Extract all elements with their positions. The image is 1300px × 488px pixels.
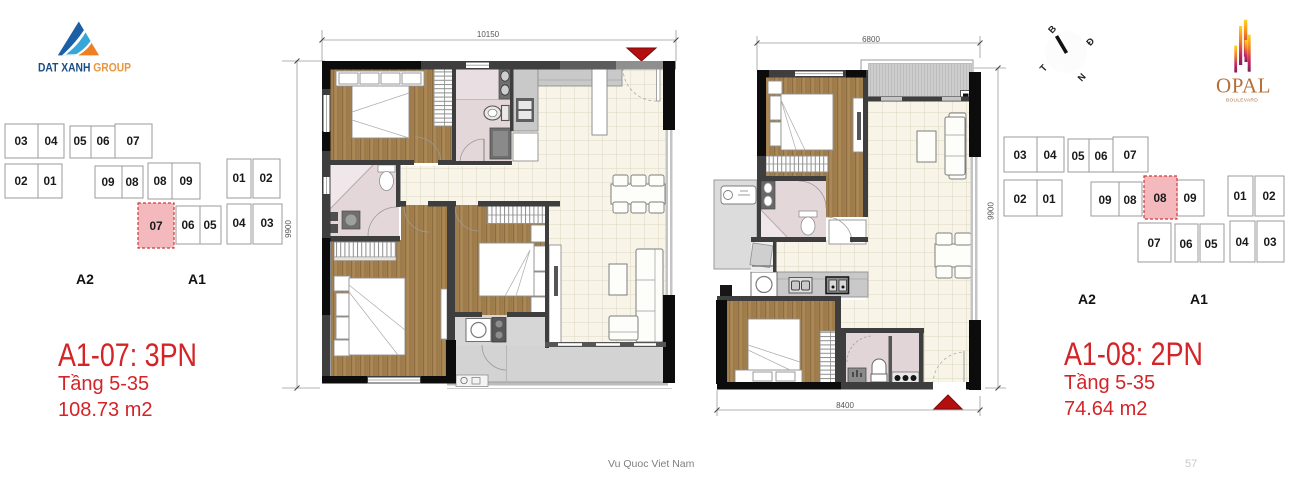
svg-text:09: 09 xyxy=(1183,191,1197,205)
svg-text:05: 05 xyxy=(203,218,217,232)
svg-text:9900: 9900 xyxy=(987,202,996,220)
svg-text:08: 08 xyxy=(153,174,167,188)
svg-text:DAT XANH GROUP: DAT XANH GROUP xyxy=(38,63,131,75)
svg-text:02: 02 xyxy=(259,171,273,185)
svg-text:BOULEVARD: BOULEVARD xyxy=(1226,98,1258,104)
svg-text:01: 01 xyxy=(232,171,246,185)
svg-text:N: N xyxy=(1076,71,1089,84)
svg-text:A2: A2 xyxy=(1078,291,1096,307)
svg-text:T: T xyxy=(1038,63,1050,75)
svg-text:01: 01 xyxy=(1042,192,1056,206)
svg-text:08: 08 xyxy=(1153,191,1167,205)
svg-text:A2: A2 xyxy=(76,271,94,287)
svg-text:A1: A1 xyxy=(188,271,206,287)
svg-text:8400: 8400 xyxy=(836,401,854,410)
svg-text:05: 05 xyxy=(1204,237,1218,251)
svg-text:01: 01 xyxy=(1233,189,1247,203)
svg-text:03: 03 xyxy=(14,134,28,148)
svg-text:07: 07 xyxy=(126,134,140,148)
svg-text:9900: 9900 xyxy=(284,220,293,238)
svg-text:08: 08 xyxy=(125,175,139,189)
svg-text:06: 06 xyxy=(1094,149,1108,163)
svg-text:05: 05 xyxy=(73,134,87,148)
svg-text:08: 08 xyxy=(1123,193,1137,207)
svg-text:OPAL: OPAL xyxy=(1216,74,1271,98)
svg-text:03: 03 xyxy=(1263,235,1277,249)
svg-text:07: 07 xyxy=(1147,236,1161,250)
svg-text:06: 06 xyxy=(1179,237,1193,251)
svg-text:02: 02 xyxy=(1262,189,1276,203)
svg-text:04: 04 xyxy=(232,216,246,230)
svg-text:02: 02 xyxy=(1013,192,1027,206)
svg-text:10150: 10150 xyxy=(477,30,500,39)
svg-text:04: 04 xyxy=(1043,148,1057,162)
svg-text:02: 02 xyxy=(14,174,28,188)
svg-text:04: 04 xyxy=(44,134,58,148)
svg-text:03: 03 xyxy=(260,216,274,230)
svg-text:06: 06 xyxy=(96,134,110,148)
svg-text:07: 07 xyxy=(149,219,163,233)
svg-text:A1: A1 xyxy=(1190,291,1208,307)
svg-text:06: 06 xyxy=(181,218,195,232)
svg-text:09: 09 xyxy=(101,175,115,189)
svg-text:Đ: Đ xyxy=(1084,36,1097,49)
svg-text:09: 09 xyxy=(1098,193,1112,207)
svg-text:07: 07 xyxy=(1123,148,1137,162)
svg-text:01: 01 xyxy=(43,174,57,188)
svg-text:05: 05 xyxy=(1071,149,1085,163)
svg-text:6800: 6800 xyxy=(862,35,880,44)
svg-text:04: 04 xyxy=(1235,235,1249,249)
svg-text:03: 03 xyxy=(1013,148,1027,162)
svg-text:09: 09 xyxy=(179,174,193,188)
